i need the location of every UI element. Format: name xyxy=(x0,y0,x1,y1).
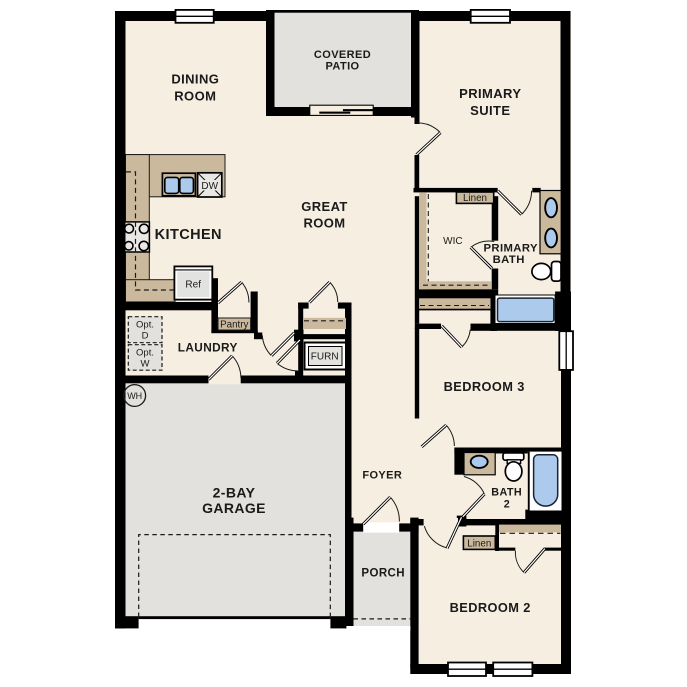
svg-text:GARAGE: GARAGE xyxy=(202,500,266,516)
svg-text:Opt.: Opt. xyxy=(136,348,154,359)
svg-text:SUITE: SUITE xyxy=(470,103,510,118)
svg-text:Linen: Linen xyxy=(463,193,487,204)
svg-text:2-BAY: 2-BAY xyxy=(213,485,256,501)
svg-text:BATH: BATH xyxy=(491,487,522,499)
svg-text:Ref: Ref xyxy=(185,280,201,291)
svg-text:ROOM: ROOM xyxy=(174,89,216,104)
svg-text:FURN: FURN xyxy=(311,351,339,362)
svg-text:BEDROOM 2: BEDROOM 2 xyxy=(450,600,531,615)
svg-text:FOYER: FOYER xyxy=(362,470,402,482)
svg-text:PRIMARY: PRIMARY xyxy=(459,86,521,101)
svg-text:Pantry: Pantry xyxy=(220,320,248,331)
svg-text:KITCHEN: KITCHEN xyxy=(155,227,222,243)
svg-text:Opt.: Opt. xyxy=(136,320,154,331)
svg-text:W: W xyxy=(141,359,150,370)
svg-text:GREAT: GREAT xyxy=(301,199,348,214)
svg-text:2: 2 xyxy=(504,498,510,510)
svg-text:Linen: Linen xyxy=(467,538,491,549)
svg-text:LAUNDRY: LAUNDRY xyxy=(178,340,238,354)
svg-text:PRIMARY: PRIMARY xyxy=(483,243,538,255)
svg-text:COVERED: COVERED xyxy=(314,49,371,61)
svg-text:BEDROOM 3: BEDROOM 3 xyxy=(444,379,525,394)
svg-text:DW: DW xyxy=(201,181,218,192)
svg-text:DINING: DINING xyxy=(171,71,219,86)
svg-text:PATIO: PATIO xyxy=(326,61,360,73)
svg-text:PORCH: PORCH xyxy=(361,568,405,580)
svg-text:ROOM: ROOM xyxy=(303,216,345,231)
svg-text:D: D xyxy=(142,331,149,342)
svg-text:BATH: BATH xyxy=(493,254,525,266)
svg-text:WH: WH xyxy=(127,391,142,401)
svg-text:WIC: WIC xyxy=(443,236,462,247)
